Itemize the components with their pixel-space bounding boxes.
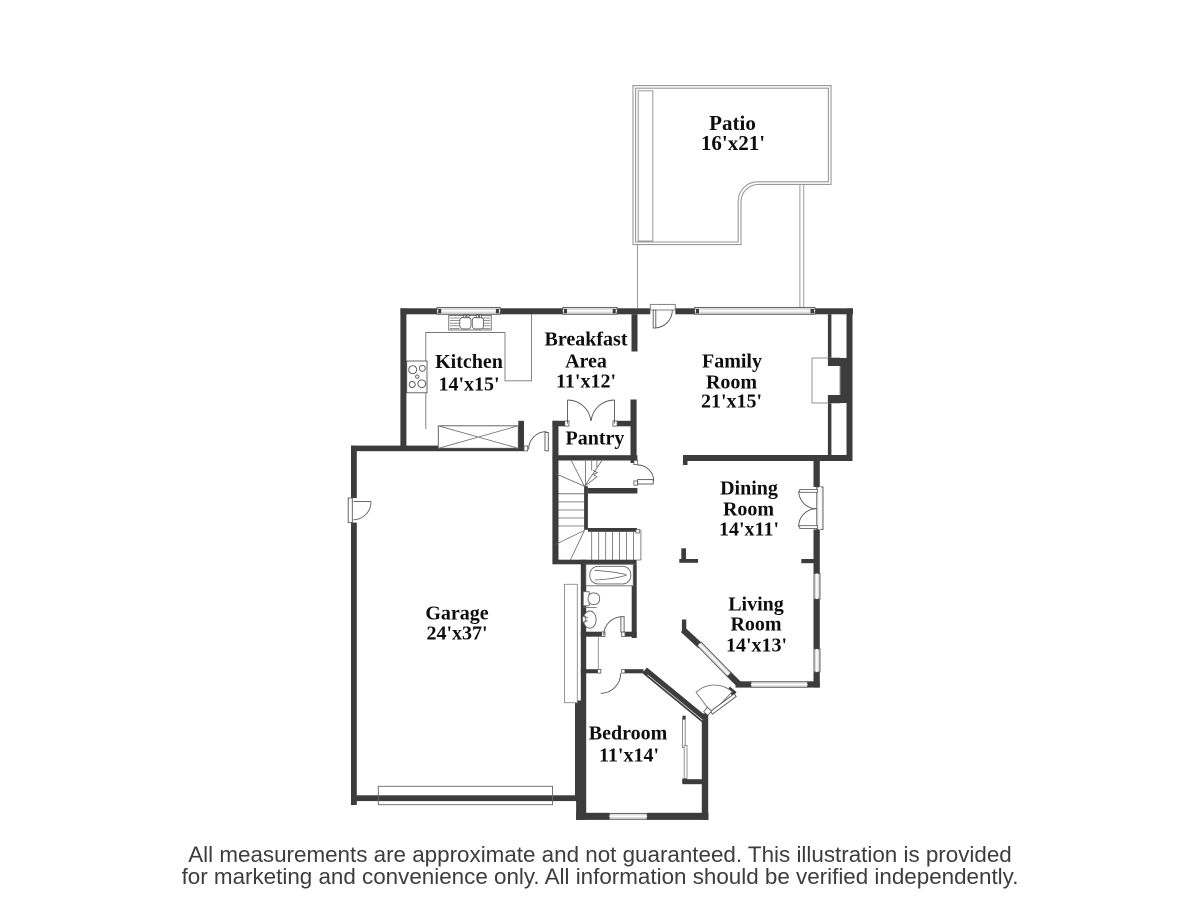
svg-text:11'x12': 11'x12' <box>556 371 616 393</box>
svg-text:Dining: Dining <box>720 478 778 500</box>
svg-text:Bedroom: Bedroom <box>589 723 668 745</box>
svg-text:Room: Room <box>730 614 781 636</box>
svg-text:16'x21': 16'x21' <box>701 131 765 155</box>
svg-text:Breakfast: Breakfast <box>545 329 628 351</box>
svg-text:Kitchen: Kitchen <box>435 351 503 373</box>
svg-text:11'x14': 11'x14' <box>599 745 659 767</box>
svg-text:21'x15': 21'x15' <box>701 391 762 413</box>
svg-text:Family: Family <box>702 351 762 373</box>
svg-text:14'x15': 14'x15' <box>438 374 499 396</box>
svg-text:Garage: Garage <box>425 603 488 625</box>
svg-text:Room: Room <box>723 499 774 521</box>
svg-text:Living: Living <box>728 594 784 616</box>
svg-text:Area: Area <box>565 351 607 373</box>
svg-text:Pantry: Pantry <box>566 428 625 450</box>
svg-text:14'x11': 14'x11' <box>719 519 779 541</box>
svg-text:24'x37': 24'x37' <box>426 623 487 645</box>
svg-text:14'x13': 14'x13' <box>726 635 787 657</box>
svg-text:for marketing and convenience: for marketing and convenience only. All … <box>182 864 1019 889</box>
